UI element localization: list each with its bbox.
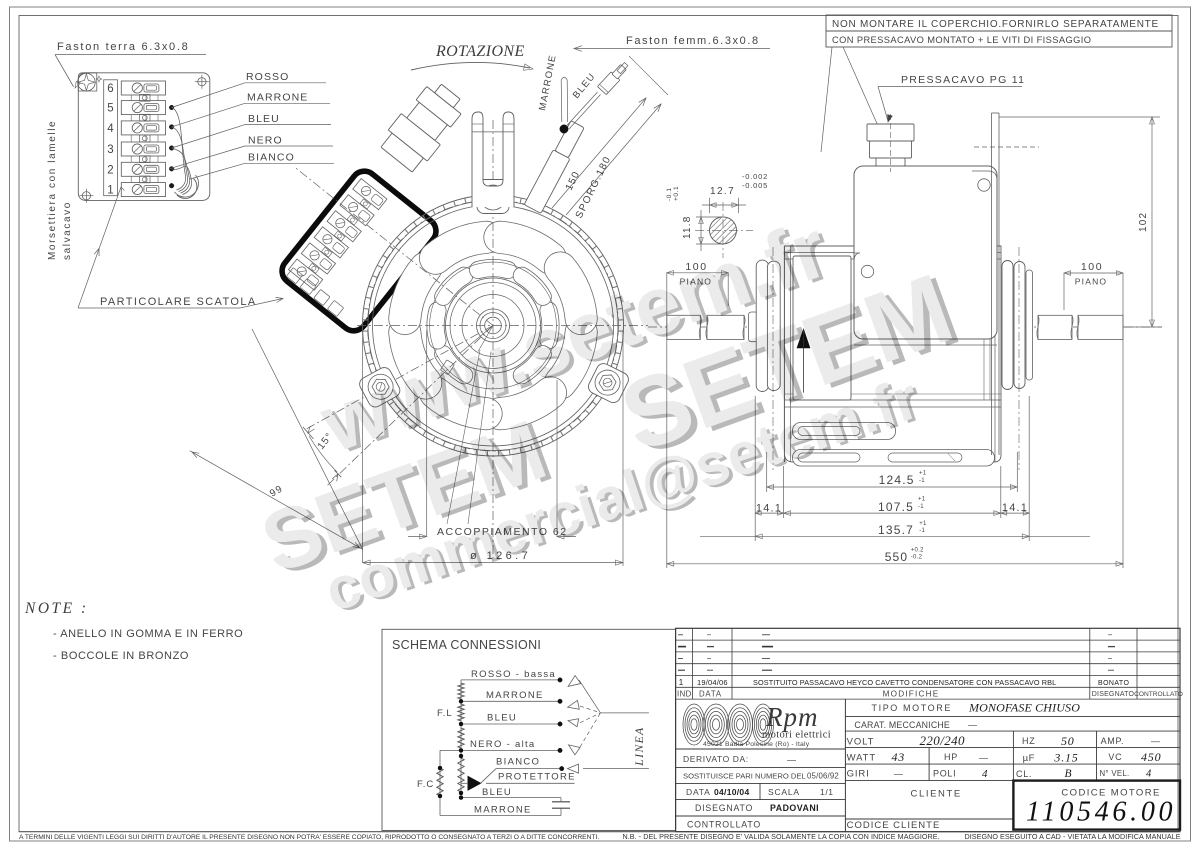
svg-text:B: B bbox=[1065, 768, 1072, 780]
svg-text:PROTETTORE: PROTETTORE bbox=[498, 772, 576, 783]
svg-text:Rpm: Rpm bbox=[765, 702, 819, 732]
svg-text:HP: HP bbox=[944, 752, 958, 762]
svg-text:220/240: 220/240 bbox=[920, 733, 966, 748]
svg-text:—: — bbox=[894, 769, 903, 779]
svg-text:ROTAZIONE: ROTAZIONE bbox=[435, 43, 525, 60]
svg-text:CL.: CL. bbox=[1016, 769, 1032, 779]
svg-text:+1: +1 bbox=[919, 471, 927, 477]
svg-text:CONTROLLATO: CONTROLLATO bbox=[687, 820, 761, 830]
svg-text:+1: +1 bbox=[919, 521, 927, 527]
svg-text:—: — bbox=[1151, 736, 1160, 746]
svg-text:IND: IND bbox=[677, 689, 692, 698]
svg-text:N° VEL.: N° VEL. bbox=[1100, 769, 1130, 778]
svg-text:4: 4 bbox=[1146, 769, 1152, 780]
svg-text:MONOFASE CHIUSO: MONOFASE CHIUSO bbox=[968, 701, 1080, 715]
svg-text:MODIFICHE: MODIFICHE bbox=[883, 689, 940, 698]
svg-text:NOTE :: NOTE : bbox=[24, 600, 89, 617]
svg-text:BLEU: BLEU bbox=[487, 713, 517, 724]
svg-text:DISEGNATO: DISEGNATO bbox=[1092, 691, 1135, 698]
svg-text:2: 2 bbox=[107, 164, 113, 176]
svg-text:DERIVATO DA:: DERIVATO DA: bbox=[683, 754, 749, 764]
svg-text:SOSTITUISCE PARI NUMERO DEL: SOSTITUISCE PARI NUMERO DEL bbox=[683, 771, 806, 780]
svg-text:VOLT: VOLT bbox=[847, 737, 875, 748]
svg-text:-1: -1 bbox=[919, 528, 925, 534]
svg-text:1/1: 1/1 bbox=[820, 787, 834, 797]
svg-text:107.5: 107.5 bbox=[878, 500, 914, 514]
svg-text:ROSSO: ROSSO bbox=[246, 71, 289, 83]
svg-text:salvacavo: salvacavo bbox=[62, 201, 73, 260]
svg-text:+0.2: +0.2 bbox=[911, 548, 924, 554]
svg-text:DATA: DATA bbox=[686, 787, 711, 797]
svg-text:motori elettrici: motori elettrici bbox=[762, 730, 831, 741]
svg-text:1: 1 bbox=[107, 185, 113, 197]
svg-text:GIRI: GIRI bbox=[847, 769, 870, 780]
svg-text:—: — bbox=[968, 720, 977, 730]
svg-text:TIPO MOTORE: TIPO MOTORE bbox=[872, 703, 952, 713]
svg-text:ROSSO - bassa: ROSSO - bassa bbox=[471, 669, 556, 680]
svg-text:-1: -1 bbox=[919, 478, 925, 484]
svg-text:3: 3 bbox=[107, 144, 113, 156]
svg-text:NERO: NERO bbox=[248, 134, 283, 146]
svg-text:450: 450 bbox=[1141, 750, 1161, 764]
svg-text:- ANELLO IN GOMMA E IN FERRO: - ANELLO IN GOMMA E IN FERRO bbox=[53, 628, 243, 640]
svg-text:14.1: 14.1 bbox=[1002, 502, 1028, 514]
svg-text:LINEA: LINEA bbox=[634, 726, 646, 766]
svg-text:—: — bbox=[787, 755, 796, 765]
svg-text:N.B. - DEL PRESENTE DISEGNO E': N.B. - DEL PRESENTE DISEGNO E' VALIDA SO… bbox=[623, 832, 940, 841]
svg-text:MARRONE: MARRONE bbox=[474, 805, 532, 816]
svg-text:102: 102 bbox=[1138, 212, 1149, 232]
svg-text:CARAT. MECCANICHE: CARAT. MECCANICHE bbox=[854, 720, 950, 730]
svg-text:DATA: DATA bbox=[699, 689, 722, 698]
svg-text:BLEU: BLEU bbox=[482, 787, 512, 798]
svg-text:µF: µF bbox=[1023, 753, 1035, 764]
svg-text:-0.002: -0.002 bbox=[742, 172, 768, 181]
svg-text:PADOVANI: PADOVANI bbox=[770, 803, 819, 813]
svg-text:124.5: 124.5 bbox=[879, 473, 915, 487]
svg-text:HZ: HZ bbox=[1022, 736, 1035, 746]
svg-text:4: 4 bbox=[982, 768, 988, 780]
svg-text:4: 4 bbox=[107, 123, 114, 135]
svg-text:SCHEMA CONNESSIONI: SCHEMA CONNESSIONI bbox=[392, 638, 541, 652]
svg-text:110546.00: 110546.00 bbox=[1026, 797, 1176, 828]
svg-text:45021 Badia Polesine (Ro) - It: 45021 Badia Polesine (Ro) - Italy bbox=[703, 741, 810, 748]
svg-text:BONATO: BONATO bbox=[1098, 680, 1129, 687]
svg-text:550: 550 bbox=[885, 550, 909, 564]
svg-text:-1: -1 bbox=[918, 504, 924, 510]
svg-text:DISEGNO ESEGUITO A CAD - VIETA: DISEGNO ESEGUITO A CAD - VIETATA LA MODI… bbox=[965, 832, 1181, 841]
svg-text:F.L: F.L bbox=[437, 708, 453, 719]
svg-text:CODICE CLIENTE: CODICE CLIENTE bbox=[847, 820, 941, 831]
svg-text:CONTROLLATO: CONTROLLATO bbox=[1134, 691, 1183, 698]
svg-text:PIANO: PIANO bbox=[1075, 277, 1107, 287]
svg-text:A TERMINI DELLE VIGENTI LEGGI: A TERMINI DELLE VIGENTI LEGGI SUI DIRITT… bbox=[19, 834, 599, 841]
svg-text:-0.2: -0.2 bbox=[911, 555, 923, 561]
svg-text:3.15: 3.15 bbox=[1053, 751, 1078, 765]
svg-text:MARRONE: MARRONE bbox=[247, 92, 308, 104]
svg-text:F.C: F.C bbox=[417, 779, 434, 790]
svg-text:14.1: 14.1 bbox=[756, 503, 782, 515]
svg-text:+0.1: +0.1 bbox=[673, 186, 680, 201]
svg-text:—: — bbox=[979, 753, 988, 763]
svg-text:+1: +1 bbox=[918, 497, 926, 503]
svg-text:5: 5 bbox=[107, 103, 113, 115]
svg-text:1: 1 bbox=[679, 678, 684, 687]
svg-text:- BOCCOLE IN BRONZO: - BOCCOLE IN BRONZO bbox=[53, 650, 189, 662]
svg-text:CON PRESSACAVO MONTATO + LE VI: CON PRESSACAVO MONTATO + LE VITI DI FISS… bbox=[832, 35, 1091, 45]
svg-text:Faston terra 6.3x0.8: Faston terra 6.3x0.8 bbox=[57, 41, 189, 53]
svg-text:DISEGNATO: DISEGNATO bbox=[695, 803, 753, 813]
svg-text:CLIENTE: CLIENTE bbox=[911, 789, 962, 800]
svg-text:135.7: 135.7 bbox=[878, 523, 914, 537]
svg-text:100: 100 bbox=[1081, 261, 1103, 273]
svg-text:BIANCO: BIANCO bbox=[248, 152, 295, 164]
svg-text:-0.1: -0.1 bbox=[666, 187, 673, 201]
svg-text:19/04/06: 19/04/06 bbox=[697, 678, 728, 687]
svg-text:04/10/04: 04/10/04 bbox=[714, 787, 750, 797]
svg-text:BIANCO: BIANCO bbox=[496, 757, 540, 768]
svg-text:SCALA: SCALA bbox=[768, 787, 800, 797]
svg-text:VC: VC bbox=[1108, 752, 1122, 762]
svg-text:Faston femm.6.3x0.8: Faston femm.6.3x0.8 bbox=[626, 35, 760, 47]
svg-text:NON MONTARE IL COPERCHIO.FORNI: NON MONTARE IL COPERCHIO.FORNIRLO SEPARA… bbox=[832, 19, 1159, 30]
svg-text:PARTICOLARE SCATOLA: PARTICOLARE SCATOLA bbox=[100, 296, 257, 308]
svg-text:SOSTITUITO PASSACAVO HEYCO CAV: SOSTITUITO PASSACAVO HEYCO CAVETTO CONDE… bbox=[753, 678, 1056, 687]
svg-text:50: 50 bbox=[1061, 734, 1075, 748]
svg-text:43: 43 bbox=[892, 750, 906, 764]
svg-text:WATT: WATT bbox=[847, 753, 876, 764]
svg-text:6: 6 bbox=[107, 83, 113, 95]
svg-text:PRESSACAVO PG 11: PRESSACAVO PG 11 bbox=[901, 74, 1025, 86]
svg-text:BLEU: BLEU bbox=[248, 113, 280, 125]
svg-text:NERO - alta: NERO - alta bbox=[470, 739, 536, 750]
svg-text:12.7: 12.7 bbox=[710, 186, 735, 197]
svg-text:AMP.: AMP. bbox=[1101, 736, 1125, 746]
svg-text:MARRONE: MARRONE bbox=[486, 690, 544, 701]
svg-text:-0.005: -0.005 bbox=[742, 181, 768, 190]
svg-text:Morsettiera con lamelle: Morsettiera con lamelle bbox=[47, 120, 58, 260]
svg-text:05/06/92: 05/06/92 bbox=[807, 771, 839, 780]
svg-text:11.8: 11.8 bbox=[682, 215, 693, 239]
svg-text:POLI: POLI bbox=[933, 769, 956, 779]
